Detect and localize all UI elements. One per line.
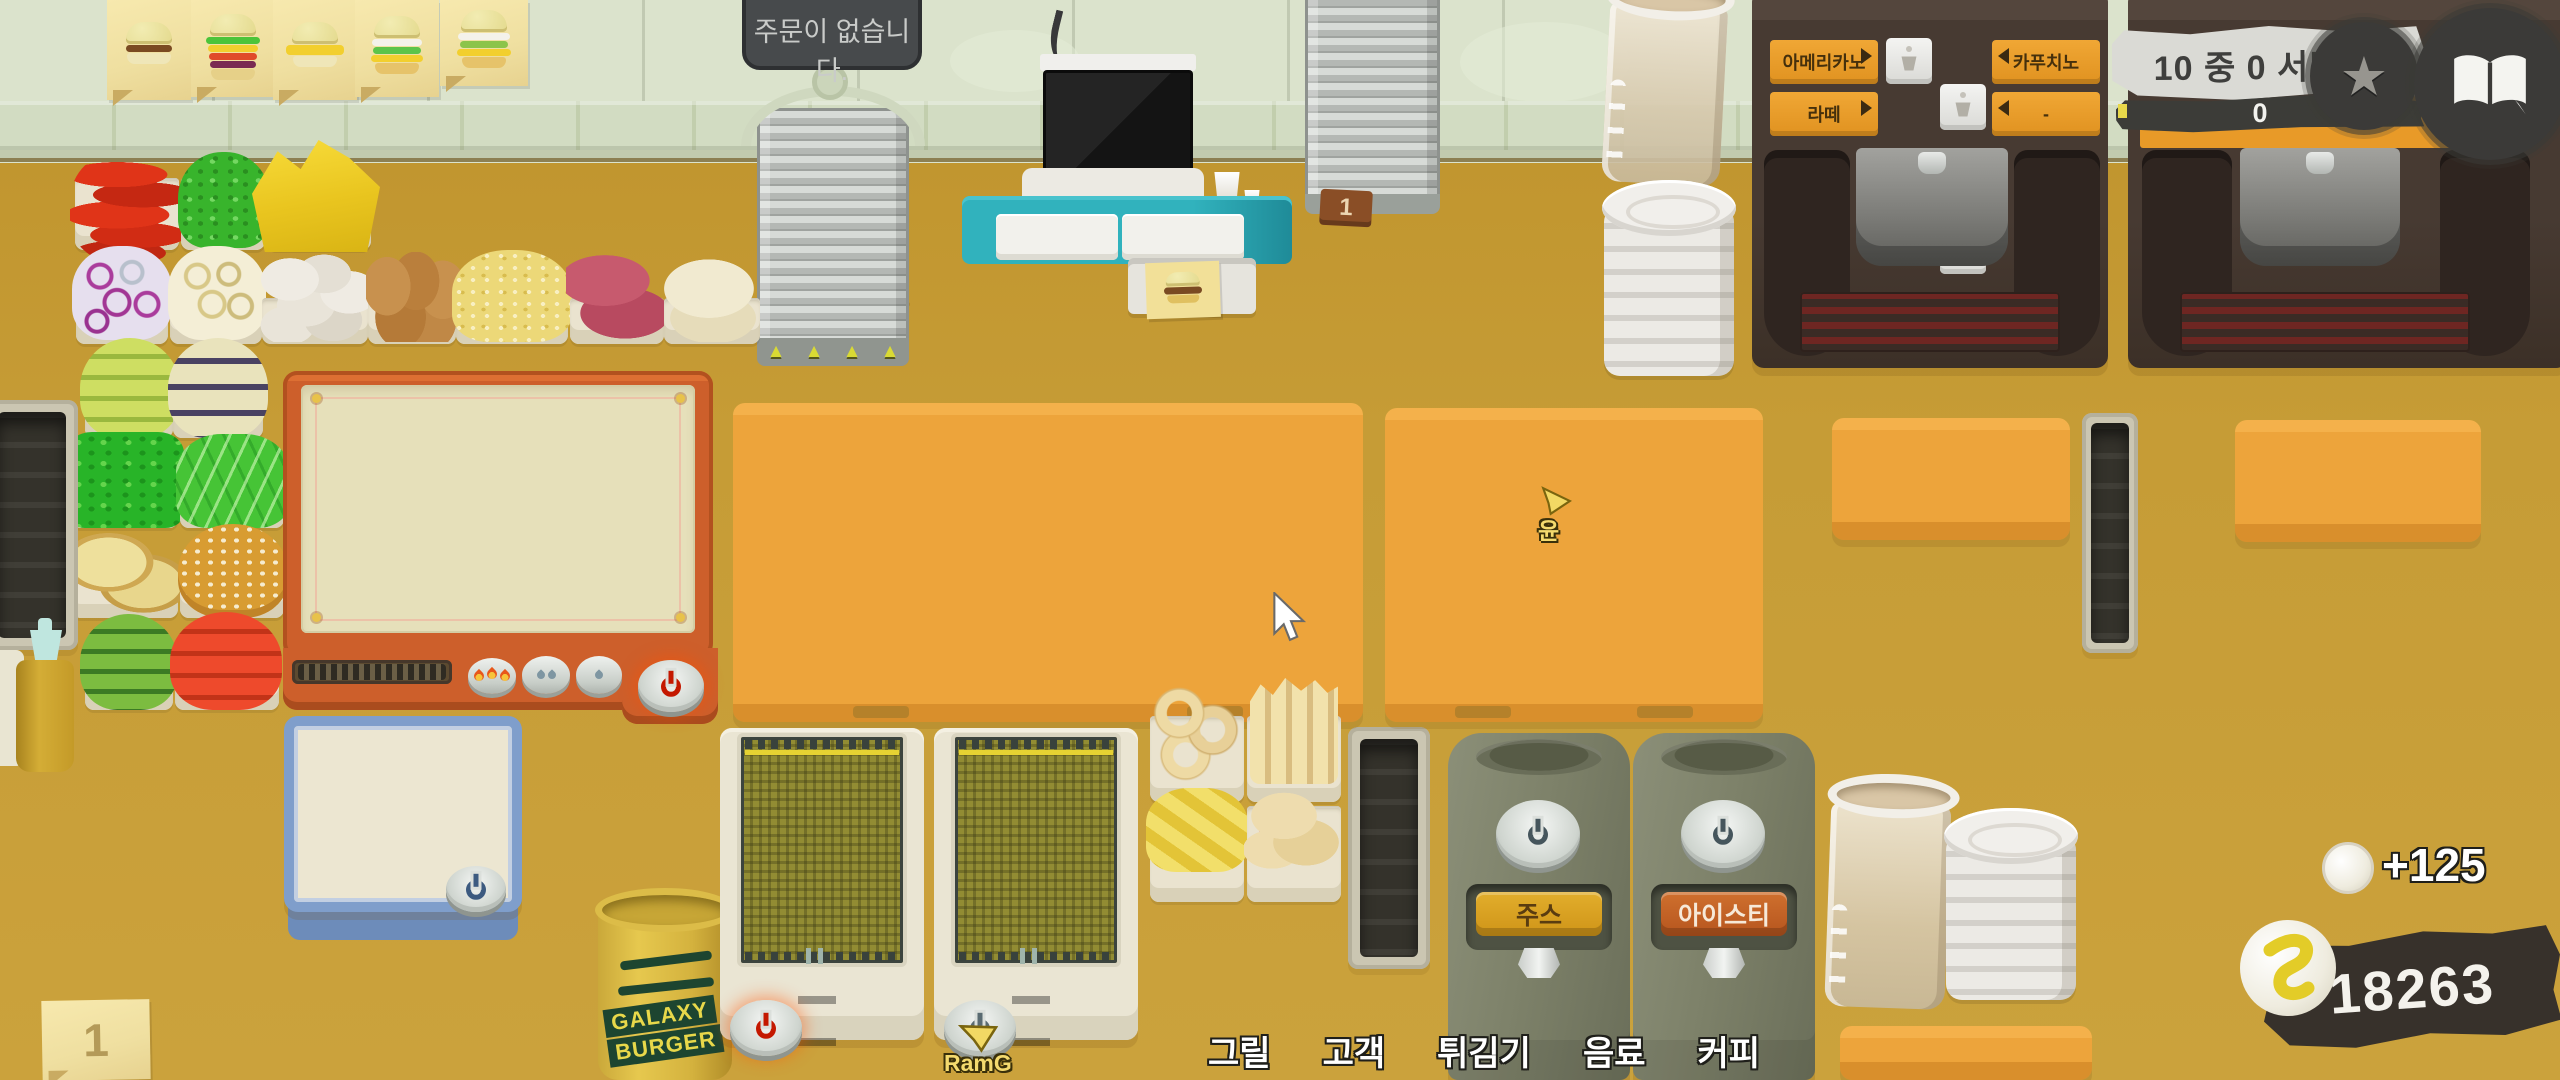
orders-panel: 주문이 없습니다. (742, 0, 922, 70)
money-balance: 18263 (2327, 950, 2497, 1026)
burger-doodle (1163, 271, 1202, 303)
fryer-right-handle[interactable] (1012, 962, 1050, 1080)
coin-gain-icon (2322, 842, 2374, 894)
beef-patties (566, 246, 668, 342)
plate-stack-top[interactable] (1604, 206, 1734, 378)
juice-power-button[interactable] (1496, 800, 1580, 868)
order-note[interactable] (355, 0, 439, 97)
cup-stack-bottom[interactable] (1824, 786, 1956, 1012)
grease-strip[interactable] (292, 660, 452, 684)
note-count: 1 (41, 999, 150, 1080)
fried-onion-rings (1144, 682, 1248, 786)
coffee-dispense-button[interactable] (1886, 38, 1932, 84)
trash-chute-center[interactable] (1348, 727, 1430, 969)
player-cursor-label: RamG (944, 1050, 1012, 1077)
counter-note[interactable]: 1 (41, 999, 150, 1080)
shutter-tag-label: 1 (1339, 194, 1354, 223)
arrow-left-icon (1998, 100, 2009, 116)
chicken-patties (660, 250, 762, 342)
zucchini-slices (80, 338, 180, 438)
coffee-nozzle (1918, 152, 1946, 174)
plain-buns (66, 522, 184, 618)
sticky-note-burger[interactable] (1145, 261, 1221, 320)
section-nav: 그릴 고객 튀김기 음료 커피 (1208, 1026, 1760, 1075)
eggplant-slices (168, 338, 268, 438)
rating-badge[interactable] (2310, 22, 2418, 130)
trash-chute-right[interactable] (2082, 413, 2138, 653)
power-icon (466, 880, 486, 900)
monitor-top-bar (1040, 54, 1196, 71)
order-note[interactable] (440, 0, 528, 86)
mushrooms (258, 250, 372, 342)
right-roller-shutter (1305, 0, 1440, 212)
empty-coffee-slot-button[interactable]: - (1992, 92, 2100, 136)
arrow-right-icon (1861, 48, 1872, 64)
money-gain: +125 (2382, 838, 2486, 892)
grill-corner-dot (676, 394, 685, 403)
pickle-slices (80, 614, 178, 710)
register-drawer-right[interactable] (1122, 214, 1244, 260)
counter-notch (853, 706, 909, 718)
bucket-scribble (620, 950, 712, 970)
water-drop-icon (546, 669, 557, 680)
power-icon (1713, 825, 1733, 845)
grill-heat-high-button[interactable] (468, 658, 516, 694)
lettuce-leaves (176, 434, 290, 528)
left-shutter-warning-bar (757, 338, 909, 366)
mozzarella-sticks (1250, 678, 1338, 784)
order-note[interactable] (273, 0, 357, 100)
mustard-bottle[interactable] (16, 660, 74, 772)
cup-stack-top[interactable] (1601, 0, 1731, 189)
warning-triangle-icon (843, 341, 862, 363)
coffee-nozzle (2306, 152, 2334, 174)
eggs (366, 252, 462, 342)
grill-corner-dot (312, 394, 321, 403)
fryer-left-power-button[interactable] (730, 1000, 802, 1056)
recipe-book-badge[interactable] (2414, 8, 2560, 160)
fryer-left-basket[interactable] (737, 733, 907, 967)
nav-grill[interactable]: 그릴 (1208, 1026, 1271, 1075)
juice-spout (1518, 948, 1560, 978)
power-icon (756, 1019, 776, 1039)
power-icon (661, 677, 681, 697)
mustard-tip (38, 618, 52, 634)
bucket-rim (595, 888, 735, 932)
nav-drinks[interactable]: 음료 (1583, 1026, 1646, 1075)
water-drop-icon (535, 669, 546, 680)
grill-corner-dot (312, 613, 321, 622)
grill-heat-mid-button[interactable] (522, 656, 570, 694)
wall-highlight (1460, 22, 1630, 102)
arrow-right-icon (1861, 100, 1872, 116)
counter-notch (1637, 706, 1693, 718)
star-icon (2340, 45, 2388, 108)
americano-label: 아메리카노 (1783, 49, 1866, 75)
trash-chute-left[interactable] (0, 400, 78, 650)
counter-notch (1455, 706, 1511, 718)
grill-heat-low-button[interactable] (576, 656, 622, 694)
warning-triangle-icon (881, 341, 900, 363)
game-stage: 1 주문이 없습니다. 아메리카노 카푸치노 라떼 - (0, 0, 2560, 1080)
cappuccino-button[interactable]: 카푸치노 (1992, 40, 2100, 84)
iced-tea-power-button[interactable] (1681, 800, 1765, 868)
frisee-lettuce (66, 432, 184, 528)
order-note[interactable] (191, 0, 275, 97)
drip-grill (2180, 292, 2470, 352)
iced-tea-label: 아이스티 (1678, 896, 1770, 932)
flame-icon (485, 666, 499, 680)
nav-customers[interactable]: 고객 (1323, 1026, 1386, 1075)
fryer-left-handle[interactable] (798, 962, 836, 1080)
flame-icon (472, 669, 486, 683)
arrow-left-icon (1998, 48, 2009, 64)
bucket-scribble (618, 977, 714, 996)
coffee-dispense-button[interactable] (1940, 84, 1986, 130)
hash-browns (452, 250, 572, 342)
americano-button[interactable]: 아메리카노 (1770, 40, 1878, 84)
progress-tick (2118, 104, 2127, 118)
empty-slot-label: - (2043, 104, 2049, 125)
power-icon (1528, 825, 1548, 845)
flame-icon (498, 669, 512, 683)
grill-surface-line (315, 397, 681, 621)
register-drawer-left[interactable] (996, 214, 1118, 260)
juice-label: 주스 (1516, 896, 1562, 932)
plate-stack-bottom[interactable] (1946, 834, 2076, 1002)
fryer-right-basket[interactable] (951, 733, 1121, 967)
white-cursor (1272, 592, 1310, 644)
red-onion-rings (72, 246, 172, 340)
grill-corner-dot (676, 613, 685, 622)
prep-counter-left[interactable] (733, 403, 1363, 722)
serving-counter-right-2[interactable] (2235, 420, 2481, 542)
latte-button[interactable]: 라떼 (1770, 92, 1878, 136)
grill-power-button[interactable] (638, 660, 704, 712)
latte-label: 라떼 (1807, 101, 1840, 127)
machine-logo (1476, 739, 1602, 775)
iced-tea-button[interactable]: 아이스티 (1661, 892, 1787, 936)
player-cursor-label: 윤 (1538, 512, 1559, 546)
nav-fryer[interactable]: 튀김기 (1437, 1026, 1531, 1075)
coin-icon (2240, 920, 2336, 1016)
nav-coffee[interactable]: 커피 (1698, 1026, 1761, 1075)
machine-logo (1661, 739, 1787, 775)
blue-tray-power-button[interactable] (446, 866, 506, 912)
order-note[interactable] (107, 0, 191, 100)
cappuccino-label: 카푸치노 (2013, 49, 2079, 75)
serving-counter-right-1[interactable] (1832, 418, 2070, 540)
prep-counter-center[interactable] (1385, 408, 1763, 722)
fried-shrimp (1244, 786, 1344, 874)
tomato-slices (170, 612, 282, 710)
sesame-buns (178, 524, 288, 618)
warning-triangle-icon (805, 341, 824, 363)
galaxy-burger-bucket[interactable]: GALAXY BURGER (598, 906, 732, 1080)
progress-count: 0 (2240, 98, 2280, 130)
white-onion-rings (168, 246, 266, 340)
drip-grill (1800, 292, 2060, 352)
book-icon (2447, 52, 2533, 116)
iced-tea-spout (1703, 948, 1745, 978)
left-roller-shutter (757, 108, 909, 366)
counter-bottom-right[interactable] (1840, 1026, 2092, 1080)
juice-button[interactable]: 주스 (1476, 892, 1602, 936)
warning-triangle-icon (767, 341, 786, 363)
potato-wedges (1146, 788, 1248, 872)
water-drop-icon (593, 669, 604, 680)
shutter-number-tag: 1 (1319, 189, 1373, 228)
